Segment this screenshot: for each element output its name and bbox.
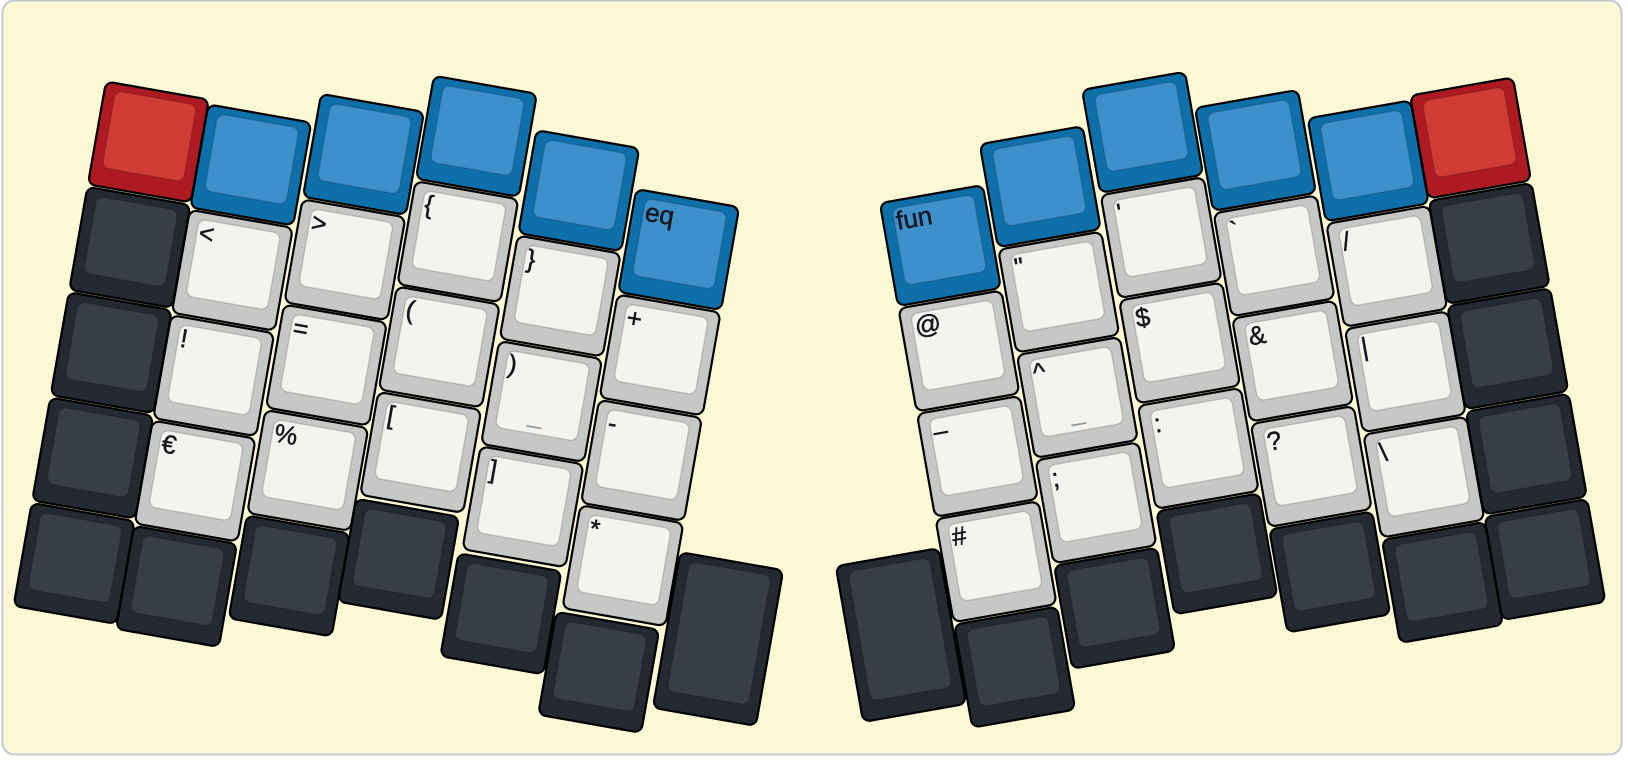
- svg-text:eq: eq: [643, 197, 677, 232]
- svg-text:fun: fun: [894, 200, 935, 236]
- svg-text:@: @: [912, 307, 943, 341]
